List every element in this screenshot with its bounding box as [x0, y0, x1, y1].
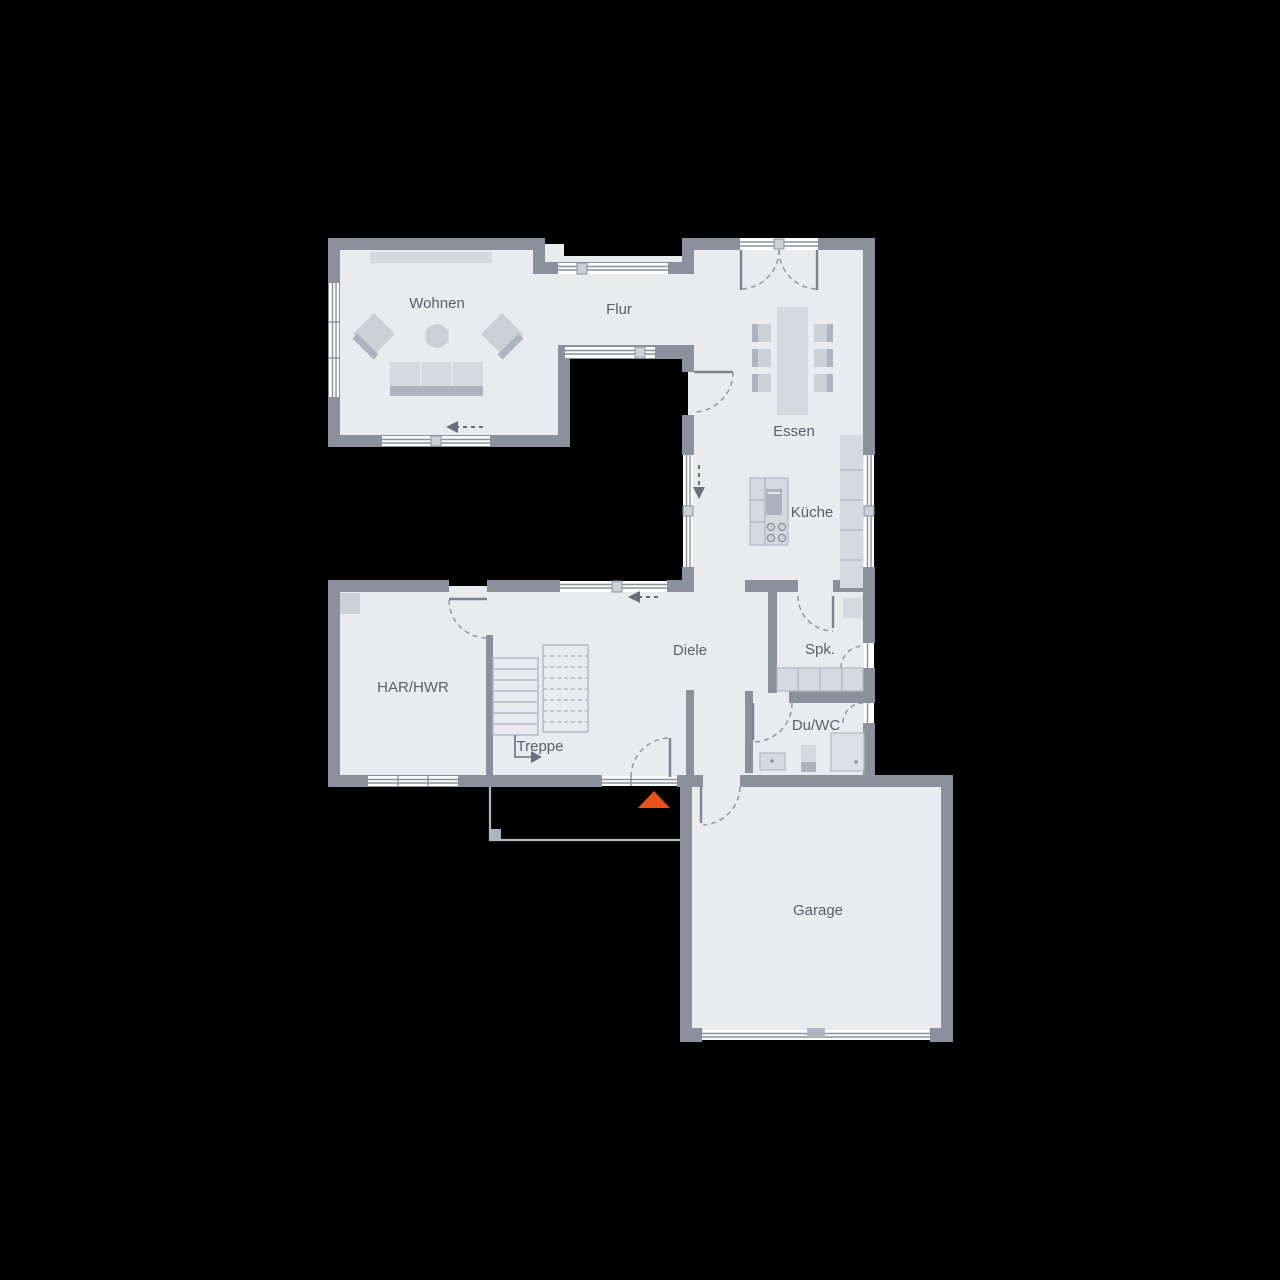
sofa — [390, 362, 483, 396]
kitchen-counter — [840, 435, 863, 588]
room-label-du-wc: Du/WC — [792, 717, 841, 734]
sideboard — [370, 252, 492, 263]
porch-post — [491, 829, 501, 839]
dining-chairs-right — [814, 324, 833, 392]
chimney-block — [340, 593, 360, 614]
window-kueche-right — [864, 455, 874, 567]
room-label-essen: Essen — [773, 423, 815, 440]
floor-plan: Wohnen Flur Essen Küche Diele HAR/HWR Tr… — [0, 0, 1280, 1280]
room-label-flur: Flur — [606, 301, 632, 318]
window-flur-bottom — [565, 347, 655, 358]
room-label-spk: Spk. — [805, 641, 835, 658]
room-label-diele: Diele — [673, 642, 707, 659]
shower — [831, 733, 864, 771]
pantry-cabinet — [843, 598, 863, 618]
window-flur-top — [558, 263, 668, 274]
window-kueche-left — [683, 455, 693, 567]
washbasin — [760, 753, 785, 770]
room-label-garage: Garage — [793, 902, 843, 919]
window-diele-top — [560, 581, 667, 592]
room-label-har-hwr: HAR/HWR — [377, 679, 449, 696]
window-wohnen-bottom — [382, 436, 490, 446]
pantry-shelves — [777, 668, 863, 691]
dining-chairs-left — [752, 324, 771, 392]
coffee-table — [425, 324, 449, 348]
room-label-wohnen: Wohnen — [409, 295, 465, 312]
window-har-bottom — [368, 776, 458, 786]
room-label-kueche: Küche — [791, 504, 834, 521]
room-label-treppe: Treppe — [517, 738, 564, 755]
window-wohnen-left — [329, 283, 339, 397]
dining-table — [777, 307, 808, 415]
toilet — [801, 745, 816, 772]
kitchen-island — [750, 478, 788, 545]
